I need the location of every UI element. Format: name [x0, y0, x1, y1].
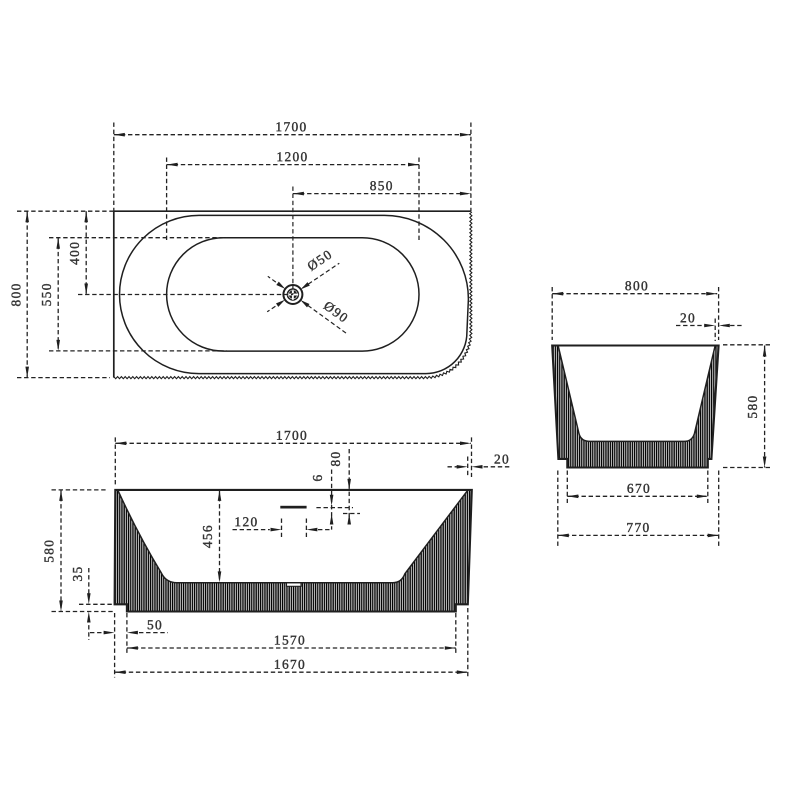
svg-text:400: 400 [67, 241, 82, 265]
svg-text:580: 580 [42, 539, 57, 563]
svg-text:35: 35 [70, 565, 85, 581]
svg-text:800: 800 [9, 282, 24, 306]
svg-text:120: 120 [234, 514, 258, 529]
svg-text:850: 850 [370, 178, 394, 193]
svg-text:670: 670 [627, 481, 651, 496]
svg-text:1570: 1570 [274, 632, 306, 647]
svg-text:770: 770 [626, 520, 650, 535]
svg-text:800: 800 [625, 278, 649, 293]
svg-text:6: 6 [310, 473, 325, 481]
svg-text:550: 550 [39, 282, 54, 306]
svg-text:1700: 1700 [275, 119, 307, 134]
svg-text:1200: 1200 [276, 149, 308, 164]
svg-text:456: 456 [200, 524, 215, 548]
svg-text:80: 80 [328, 450, 343, 466]
svg-text:50: 50 [147, 617, 163, 632]
svg-text:20: 20 [680, 310, 696, 325]
svg-text:1700: 1700 [276, 428, 308, 443]
svg-text:1670: 1670 [274, 657, 306, 672]
svg-text:20: 20 [494, 451, 510, 466]
svg-text:580: 580 [745, 394, 760, 418]
